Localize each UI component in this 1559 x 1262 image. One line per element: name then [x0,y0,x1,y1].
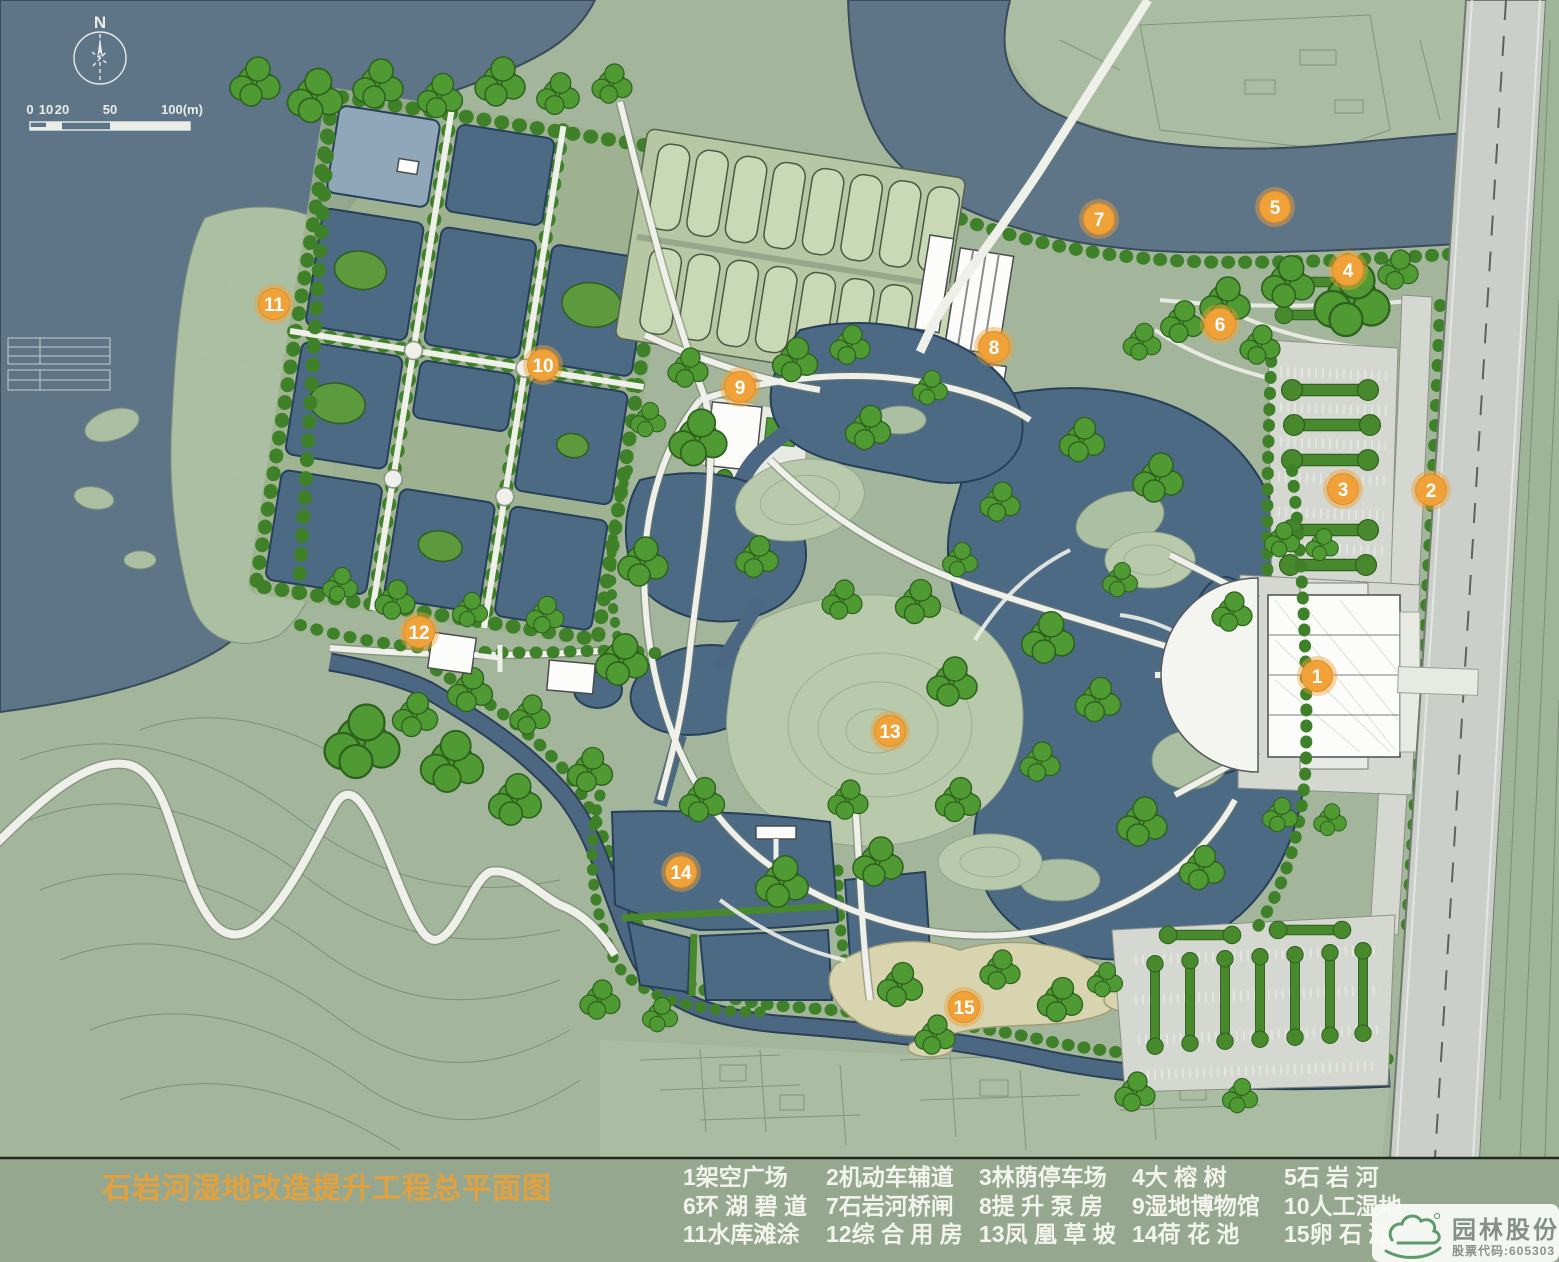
legend-item-11: 11水库滩涂 [683,1221,799,1247]
scale-tick-4: 100(m) [161,102,203,117]
scale-tick-3: 50 [103,102,117,117]
legend-item-5: 5石 岩 河 [1284,1164,1379,1190]
svg-text:1: 1 [1312,667,1323,688]
legend-item-3: 3林荫停车场 [979,1164,1107,1190]
svg-text:13: 13 [879,722,900,743]
plan-marker-3[interactable]: 3 [1323,469,1363,509]
plan-marker-13[interactable]: 13 [870,711,910,751]
legend-item-12: 12综 合 用 房 [826,1221,963,1247]
svg-text:12: 12 [408,623,429,644]
svg-text:3: 3 [1338,480,1349,501]
scale-tick-labels: 0102050100(m) [26,102,203,117]
svg-text:9: 9 [735,378,746,399]
svg-text:6: 6 [1215,315,1226,336]
north-label: N [94,13,106,32]
legend-item-1: 1架空广场 [683,1164,788,1190]
plan-marker-15[interactable]: 15 [944,987,984,1027]
svg-text:15: 15 [953,998,975,1019]
plan-marker-14[interactable]: 14 [661,852,701,892]
plan-marker-5[interactable]: 5 [1255,187,1295,227]
site-plan-map: N 0102050100(m) 123456789101112131415 石岩… [0,0,1559,1262]
legend-item-13: 13凤 凰 草 坡 [979,1221,1116,1247]
svg-text:4: 4 [1343,261,1354,282]
scale-tick-0: 0 [26,102,33,117]
svg-text:14: 14 [670,863,692,884]
svg-text:5: 5 [1270,198,1281,219]
svg-text:11: 11 [264,295,285,316]
legend-item-2: 2机动车辅道 [826,1164,954,1190]
legend-item-6: 6环 湖 碧 道 [683,1193,807,1219]
scale-tick-2: 20 [55,102,69,117]
plan-marker-2[interactable]: 2 [1411,470,1451,510]
site-plan-page: N 0102050100(m) 123456789101112131415 石岩… [0,0,1559,1262]
plan-marker-8[interactable]: 8 [974,327,1014,367]
company-logo: 园林股份 股票代码:605303 [1372,1204,1559,1262]
svg-text:2: 2 [1426,481,1437,502]
small-hut [397,159,419,175]
svg-text:8: 8 [989,338,1000,359]
scale-tick-1: 10 [39,102,53,117]
legend-item-7: 7石岩河桥闸 [826,1193,954,1219]
plan-marker-9[interactable]: 9 [720,367,760,407]
legend-strip: 石岩河湿地改造提升工程总平面图 1架空广场2机动车辅道3林荫停车场4大 榕 树5… [0,1158,1559,1262]
page-title: 石岩河湿地改造提升工程总平面图 [101,1172,552,1205]
plan-marker-1[interactable]: 1 [1297,656,1337,696]
southeast-parking [1112,915,1395,1092]
svg-text:7: 7 [1094,210,1105,231]
plan-marker-7[interactable]: 7 [1079,199,1119,239]
plan-marker-10[interactable]: 10 [523,345,563,385]
plan-marker-4[interactable]: 4 [1328,250,1368,290]
plan-marker-6[interactable]: 6 [1200,304,1240,344]
svg-text:10: 10 [532,356,553,377]
scale-bar: 0102050100(m) [26,102,203,130]
legend-item-9: 9湿地博物馆 [1132,1193,1260,1219]
plan-marker-12[interactable]: 12 [399,612,439,652]
legend-item-4: 4大 榕 树 [1132,1164,1227,1190]
legend-item-14: 14荷 花 池 [1132,1221,1239,1247]
plan-marker-11[interactable]: 11 [254,284,294,324]
logo-company-name: 园林股份 [1452,1217,1559,1244]
logo-stock-code: 股票代码:605303 [1452,1243,1555,1258]
legend-item-8: 8提 升 泵 房 [979,1193,1103,1219]
